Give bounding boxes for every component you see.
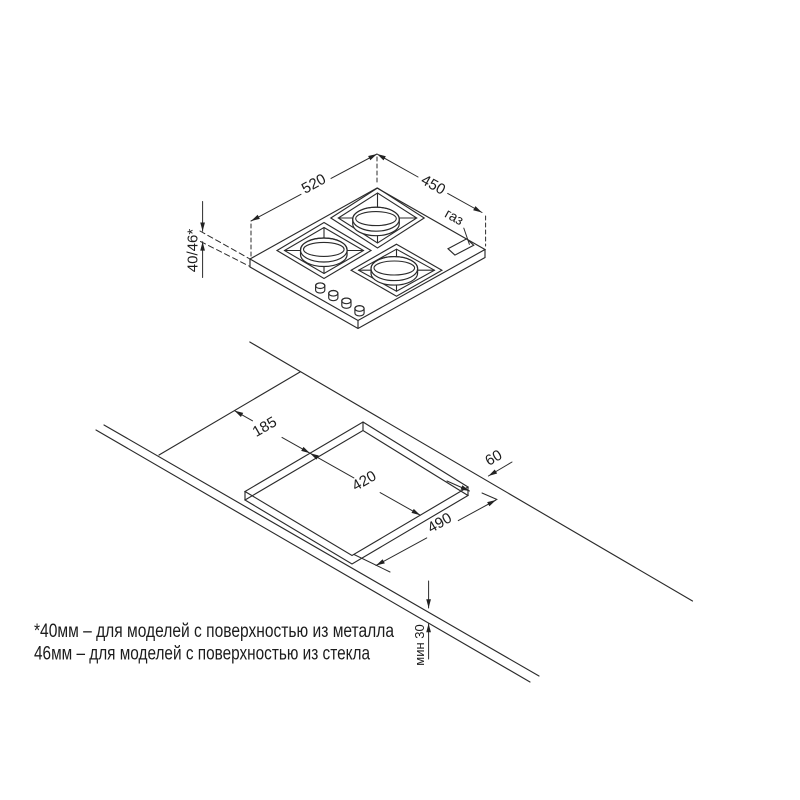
svg-text:газ: газ bbox=[442, 205, 466, 228]
svg-text:520: 520 bbox=[299, 171, 329, 198]
svg-text:490: 490 bbox=[425, 509, 455, 536]
svg-text:450: 450 bbox=[418, 172, 448, 199]
svg-text:185: 185 bbox=[250, 413, 280, 440]
svg-text:60: 60 bbox=[482, 447, 505, 470]
svg-text:*40мм – для моделей с поверхно: *40мм – для моделей с поверхностью из ме… bbox=[34, 621, 394, 642]
svg-text:мин 30: мин 30 bbox=[412, 624, 427, 665]
svg-text:46мм – для моделей с поверхнос: 46мм – для моделей с поверхностью из сте… bbox=[34, 644, 370, 665]
svg-text:420: 420 bbox=[349, 467, 379, 494]
svg-text:40/46*: 40/46* bbox=[185, 229, 202, 273]
